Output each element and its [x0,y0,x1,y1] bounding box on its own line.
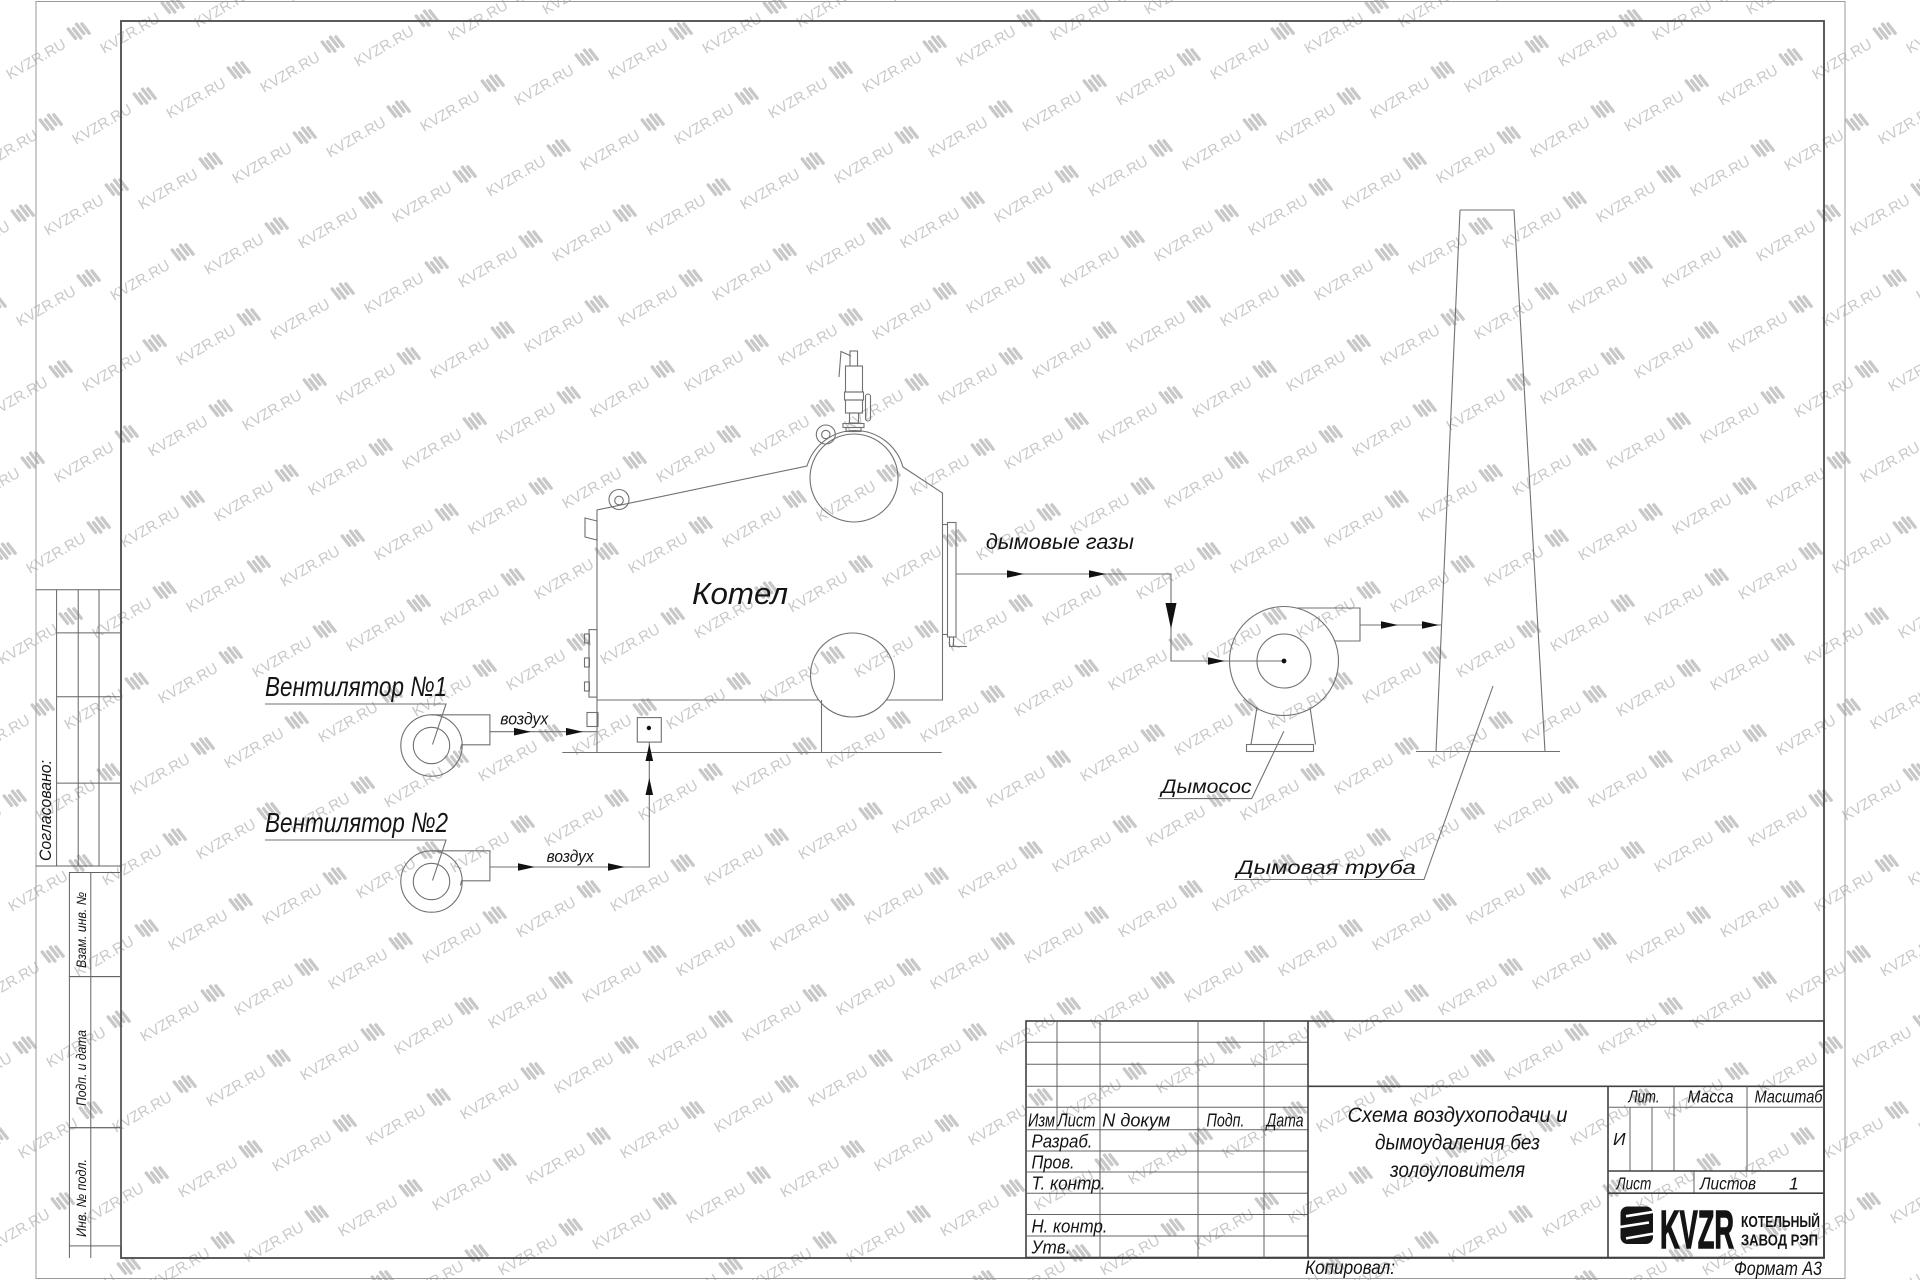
svg-text:Инв. № подл.: Инв. № подл. [74,1159,89,1237]
svg-text:Котел: Котел [692,576,788,611]
svg-text:Лит.: Лит. [1628,1087,1660,1107]
svg-text:KVZR: KVZR [1660,1200,1734,1260]
svg-text:Дата: Дата [1265,1111,1304,1131]
svg-text:воздух: воздух [547,847,594,866]
svg-text:Вентилятор №1: Вентилятор №1 [265,671,447,702]
svg-text:Масштаб: Масштаб [1755,1087,1824,1107]
svg-text:дымоудаления без: дымоудаления без [1375,1132,1540,1155]
svg-text:Листов: Листов [1699,1174,1756,1194]
svg-text:Утв.: Утв. [1031,1238,1071,1258]
svg-text:золоуловителя: золоуловителя [1389,1159,1525,1182]
svg-text:ЗАВОД РЭП: ЗАВОД РЭП [1741,1233,1818,1250]
svg-text:1: 1 [1789,1174,1799,1194]
svg-text:КОТЕЛЬНЫЙ: КОТЕЛЬНЫЙ [1741,1212,1820,1231]
svg-text:Н. контр.: Н. контр. [1032,1217,1108,1237]
svg-text:Т. контр.: Т. контр. [1032,1174,1106,1194]
svg-text:Изм: Изм [1028,1111,1055,1131]
svg-text:дымовые газы: дымовые газы [986,530,1134,554]
svg-text:Лист: Лист [1057,1111,1096,1131]
svg-text:Пров.: Пров. [1032,1153,1075,1173]
svg-text:Взам. инв. №: Взам. инв. № [74,892,89,968]
svg-text:Копировал:: Копировал: [1305,1257,1395,1279]
svg-text:Подп.: Подп. [1207,1111,1245,1131]
svg-text:Дымосос: Дымосос [1159,776,1251,798]
svg-text:Лист: Лист [1616,1174,1652,1194]
svg-text:Вентилятор №2: Вентилятор №2 [265,807,448,838]
svg-text:воздух: воздух [500,709,548,728]
svg-text:Дымовая труба: Дымовая труба [1234,857,1416,879]
svg-text:И: И [1613,1129,1626,1149]
svg-text:Схема воздухоподачи и: Схема воздухоподачи и [1348,1104,1568,1127]
svg-text:N докум: N докум [1102,1111,1170,1131]
svg-text:Разраб.: Разраб. [1032,1132,1093,1152]
svg-text:Подп. и дата: Подп. и дата [74,1030,89,1106]
svg-text:Масса: Масса [1688,1087,1734,1107]
svg-text:Согласовано:: Согласовано: [37,760,55,861]
svg-text:Формат А3: Формат А3 [1734,1258,1822,1280]
